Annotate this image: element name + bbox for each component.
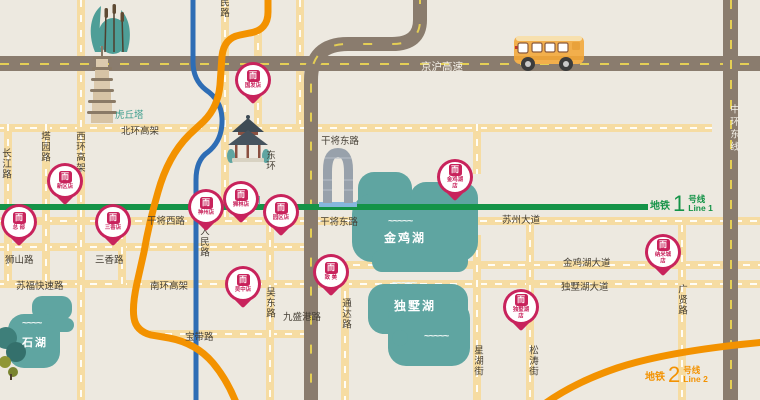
metro-line-2-number: 2 (668, 364, 680, 386)
brand-logo-icon: 而 (59, 171, 72, 183)
brand-logo-icon: 而 (325, 262, 338, 274)
brand-logo-icon: 而 (275, 202, 288, 214)
road-label-jiushenggang: 九盛港路 (283, 309, 321, 323)
shihu-lake (46, 318, 74, 332)
road-label-changjiang: 长江路 (0, 148, 12, 180)
road-label-ganjiang-dong: 干将东路 (320, 214, 358, 228)
store-pin-shenzhou[interactable]: 而 神州店 (188, 189, 224, 225)
road-label-tayuan: 塔园路 (37, 131, 51, 163)
store-pin-shilin[interactable]: 而 狮林店 (223, 181, 259, 217)
wave-icon: ~~~~~ (392, 278, 416, 289)
road-beihuan-gaojia (0, 124, 712, 132)
road-xinghu-north (473, 124, 481, 174)
pagoda-icon (86, 46, 118, 124)
road-label-wudong: 吴东路 (262, 287, 276, 319)
metro-line-2-legend: 地铁 2 号线 Line 2 (645, 364, 708, 386)
metro-line-1-en: Line 1 (688, 204, 713, 213)
brand-logo-icon: 而 (237, 274, 250, 286)
metro-line-1-prefix: 地铁 (650, 197, 670, 212)
metro-line-2-en: Line 2 (683, 375, 708, 384)
store-pin-sanxiang[interactable]: 而 三香店 (95, 204, 131, 240)
road-label-tongda: 通达路 (338, 298, 352, 330)
jinjihu-lake (372, 250, 468, 272)
wave-icon: ~~~~~ (388, 216, 412, 227)
wave-icon: ~~~~~ (424, 331, 448, 342)
road-label-renmin: 人民路 (196, 226, 210, 258)
lake-label-dushuhu: 独墅湖 (394, 297, 436, 314)
road-label-zhonghuan: 中环东线 (726, 104, 740, 154)
road-baodai (150, 330, 308, 338)
road-label-ganjiang-xi: 干将西路 (147, 213, 185, 227)
brand-logo-icon: 而 (235, 189, 248, 201)
store-pin-guofa[interactable]: 而 国发店 (235, 62, 271, 98)
lake-label-jinjihu: 金鸡湖 (384, 229, 426, 246)
brand-logo-icon: 而 (247, 70, 260, 82)
road-label-nanhuan: 南环高架 (150, 278, 188, 292)
store-pin-jinjihu[interactable]: 而 金鸡湖店 (437, 159, 473, 195)
road-label-shishan: 狮山路 (5, 252, 34, 266)
store-pin-headquarters[interactable]: 而 总 部 (1, 204, 37, 240)
road-label-sanxiang: 三香路 (95, 252, 124, 266)
store-pin-nanocity[interactable]: 而 纳米城店 (645, 234, 681, 270)
metro-line-2-prefix: 地铁 (645, 368, 665, 383)
road-label-ganjiang-dong-north: 干将东路 (321, 133, 359, 147)
road-label-suzhou-dadao: 苏州大道 (502, 212, 540, 226)
brand-logo-icon: 而 (200, 197, 213, 209)
shore-plants-icon (0, 320, 28, 380)
metro-line-1-number: 1 (673, 193, 685, 215)
gate-of-orient-icon (318, 144, 358, 208)
store-pin-wuzhong[interactable]: 而 吴中店 (225, 266, 261, 302)
brand-logo-icon: 而 (13, 212, 26, 224)
store-pin-xinqu[interactable]: 而 新区店 (47, 163, 83, 199)
road-zhonghuan-dongxian (723, 0, 738, 400)
store-pin-zhimei[interactable]: 而 致 美 (313, 254, 349, 290)
landmark-label-huqiu: 虎丘塔 (115, 107, 144, 121)
brand-logo-icon: 而 (657, 239, 670, 251)
road-label-xinghu: 星湖街 (470, 345, 484, 377)
road-label-jinghu: 京沪高速 (421, 59, 463, 74)
road-label-sufu: 苏福快速路 (16, 278, 64, 292)
metro-line-1-legend: 地铁 1 号线 Line 1 (650, 193, 713, 215)
brand-logo-icon: 而 (449, 164, 462, 176)
road-label-baodai: 宝带路 (185, 329, 214, 343)
road-label-jinjihu-dadao: 金鸡湖大道 (563, 255, 611, 269)
store-pin-yuanqu[interactable]: 而 园区店 (263, 194, 299, 230)
dushuhu-lake (392, 330, 408, 346)
brand-logo-icon: 而 (515, 294, 528, 306)
road-label-beihuan: 北环高架 (121, 123, 159, 137)
map-canvas: ~~~~~ ~~~~~ ~~~~~ ~~~~ (0, 0, 760, 400)
road-label-guangxian: 广贤路 (674, 284, 688, 316)
bus-icon (512, 26, 586, 72)
lake-label-shihu: 石湖 (22, 334, 48, 350)
road-label-minlu: 民路 (216, 0, 230, 18)
brand-logo-icon: 而 (107, 212, 120, 224)
road-label-donghuan: 东环 (262, 150, 276, 171)
road-label-songtao: 松涛街 (525, 345, 539, 377)
road-label-dushuhu-dadao: 独墅湖大道 (561, 279, 609, 293)
store-pin-dushuhu[interactable]: 而 独墅湖店 (503, 289, 539, 325)
